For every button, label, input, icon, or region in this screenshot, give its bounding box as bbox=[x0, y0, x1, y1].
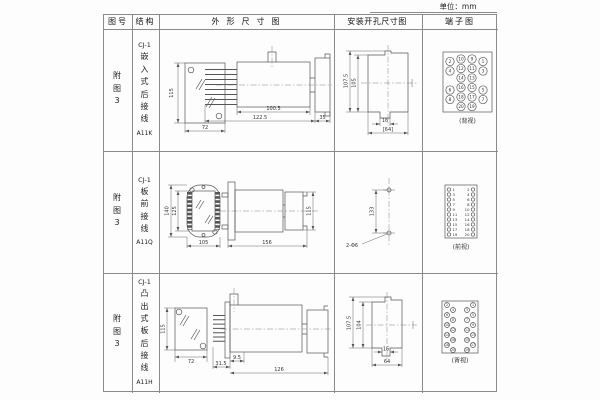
unit-underline bbox=[370, 12, 497, 13]
svg-text:3: 3 bbox=[482, 69, 485, 74]
svg-text:72: 72 bbox=[202, 125, 208, 131]
model-label: CJ-1 bbox=[138, 278, 151, 286]
fig-cell-row2: 附图3 bbox=[103, 150, 131, 272]
svg-text:[64]: [64] bbox=[383, 127, 393, 133]
terminal-circles-back-stagger: 2468101214161820135791113151719 bbox=[445, 303, 476, 353]
unit-label: 单位：mm bbox=[420, 1, 496, 12]
svg-text:31.5: 31.5 bbox=[215, 361, 226, 367]
svg-text:126: 126 bbox=[274, 367, 284, 373]
svg-text:9: 9 bbox=[472, 323, 474, 327]
svg-text:115: 115 bbox=[161, 324, 167, 334]
install-drawing-a11q: 133 2-Φ6 bbox=[333, 150, 421, 272]
code-label: A11K bbox=[137, 130, 153, 137]
svg-text:11: 11 bbox=[465, 328, 469, 332]
svg-text:64: 64 bbox=[384, 359, 390, 365]
svg-text:19: 19 bbox=[469, 104, 475, 109]
svg-text:20: 20 bbox=[465, 232, 470, 237]
svg-text:100.5: 100.5 bbox=[266, 106, 280, 112]
svg-text:12: 12 bbox=[451, 328, 455, 332]
svg-text:18: 18 bbox=[445, 343, 449, 347]
side-view: 156 115 bbox=[220, 182, 320, 248]
svg-text:140: 140 bbox=[165, 206, 171, 216]
svg-text:16: 16 bbox=[383, 347, 389, 353]
model-label: CJ-1 bbox=[138, 176, 151, 184]
svg-text:17: 17 bbox=[471, 343, 475, 347]
svg-text:3: 3 bbox=[466, 308, 468, 312]
document-page: 单位：mm 图号 结构 外形尺寸图 安装开孔尺寸图 端子图 附图3 附图3 附图… bbox=[0, 0, 600, 400]
hole-callout: 2-Φ6 bbox=[346, 243, 358, 249]
svg-text:8: 8 bbox=[452, 318, 454, 322]
model-label: CJ-1 bbox=[138, 41, 151, 49]
front-view: 140 125 105 bbox=[165, 185, 221, 248]
dim-105: 105 bbox=[352, 55, 369, 112]
view-label: (背视) bbox=[459, 117, 476, 125]
svg-text:2: 2 bbox=[449, 59, 452, 64]
svg-text:10: 10 bbox=[445, 323, 449, 327]
svg-text:2: 2 bbox=[446, 303, 448, 307]
svg-text:6: 6 bbox=[449, 88, 452, 93]
svg-text:15: 15 bbox=[469, 85, 475, 90]
view-label: (前视) bbox=[453, 243, 470, 251]
svg-text:7: 7 bbox=[482, 97, 485, 102]
svg-text:1: 1 bbox=[472, 303, 474, 307]
install-drawing-a11h: 107.5 104 16 64 bbox=[333, 272, 421, 392]
svg-text:13: 13 bbox=[471, 333, 475, 337]
svg-text:16: 16 bbox=[458, 85, 464, 90]
svg-text:17: 17 bbox=[469, 95, 475, 100]
terminal-circles-front-list: 1357911131517192468101214161820 bbox=[447, 187, 474, 237]
header-outline-dim: 外形尺寸图 bbox=[158, 14, 333, 28]
structure-cell-row1: CJ-1 嵌入式后接线 A11K bbox=[131, 28, 158, 150]
svg-text:7: 7 bbox=[466, 318, 468, 322]
svg-text:8: 8 bbox=[449, 97, 452, 102]
svg-text:9: 9 bbox=[471, 57, 474, 62]
outline-drawing-a11h: 115 72 9.5 31. bbox=[158, 272, 333, 392]
svg-text:19: 19 bbox=[465, 348, 469, 352]
dim-16: 16 bbox=[372, 118, 398, 126]
svg-text:18: 18 bbox=[458, 95, 464, 100]
header-structure: 结构 bbox=[131, 14, 158, 28]
svg-text:104: 104 bbox=[357, 320, 363, 330]
dim-115: 115 bbox=[169, 63, 185, 123]
svg-text:125: 125 bbox=[172, 206, 178, 216]
svg-text:133: 133 bbox=[370, 207, 376, 217]
dim-115: 115 bbox=[161, 308, 176, 350]
svg-text:72: 72 bbox=[188, 359, 194, 365]
svg-text:16: 16 bbox=[451, 338, 455, 342]
dim-105: 105 bbox=[187, 237, 220, 248]
install-drawing-a11k: 107.5 105 16 [64] bbox=[333, 28, 421, 150]
dim-133: 133 bbox=[370, 190, 388, 233]
svg-text:9.5: 9.5 bbox=[233, 355, 241, 361]
svg-text:122.5: 122.5 bbox=[253, 115, 267, 121]
dim-107-5: 107.5 bbox=[347, 297, 386, 348]
view-label: (背视) bbox=[452, 357, 469, 365]
mount-label: 嵌入式后接线 bbox=[140, 51, 150, 125]
dim-9-5: 9.5 bbox=[230, 352, 244, 363]
svg-text:19: 19 bbox=[453, 232, 458, 237]
svg-text:4: 4 bbox=[449, 69, 452, 74]
outline-drawing-a11q: 140 125 105 15 bbox=[158, 150, 333, 272]
svg-text:5: 5 bbox=[482, 88, 485, 93]
svg-text:105: 105 bbox=[199, 240, 209, 246]
svg-text:16: 16 bbox=[382, 118, 388, 124]
mount-label: 板前接线 bbox=[140, 186, 150, 236]
fig-cell-row3: 附图3 bbox=[103, 272, 131, 392]
front-view: 115 72 bbox=[161, 308, 208, 365]
structure-cell-row3: CJ-1 凸出式板后接线 A11H bbox=[131, 272, 158, 392]
header-fig-no: 图号 bbox=[103, 14, 131, 28]
dim-126: 126 bbox=[230, 357, 328, 375]
svg-text:107.5: 107.5 bbox=[347, 316, 353, 330]
front-view: 115 72 bbox=[169, 63, 225, 133]
side-view: 100.5 122.5 35 bbox=[205, 46, 332, 123]
dim-72: 72 bbox=[175, 350, 207, 365]
svg-text:1: 1 bbox=[482, 59, 485, 64]
structure-cell-row2: CJ-1 板前接线 A11Q bbox=[131, 150, 158, 272]
svg-text:4: 4 bbox=[452, 308, 454, 312]
terminal-diagram-back-grid: 2468101214161820911131517191357 (背视) bbox=[421, 28, 497, 150]
header-terminal: 端子图 bbox=[421, 14, 497, 28]
svg-text:11: 11 bbox=[469, 66, 475, 71]
svg-text:20: 20 bbox=[458, 104, 464, 109]
svg-text:15: 15 bbox=[465, 338, 469, 342]
svg-text:10: 10 bbox=[458, 57, 464, 62]
svg-text:6: 6 bbox=[446, 313, 448, 317]
terminal-circles-back-grid: 2468101214161820911131517191357 bbox=[446, 55, 487, 111]
svg-text:12: 12 bbox=[458, 66, 464, 71]
svg-text:35: 35 bbox=[319, 115, 325, 121]
svg-text:115: 115 bbox=[307, 206, 313, 216]
header-install-dim: 安装开孔尺寸图 bbox=[333, 14, 421, 28]
dim-16: 16 bbox=[374, 347, 398, 354]
dim-156: 156 bbox=[228, 230, 307, 248]
mount-label: 凸出式板后接线 bbox=[140, 288, 150, 375]
svg-text:156: 156 bbox=[262, 240, 272, 246]
svg-text:107.5: 107.5 bbox=[344, 74, 350, 88]
terminal-diagram-front-list: 1357911131517192468101214161820 (前视) bbox=[421, 150, 497, 272]
outline-drawing-a11k: 115 72 100.5 122.5 bbox=[158, 28, 333, 150]
svg-text:5: 5 bbox=[472, 313, 474, 317]
dim-107-5: 107.5 bbox=[344, 51, 386, 112]
terminal-diagram-back-stagger: 2468101214161820135791113151719 (背视) bbox=[421, 272, 497, 392]
code-label: A11H bbox=[136, 379, 152, 386]
svg-text:13: 13 bbox=[469, 76, 475, 81]
svg-text:20: 20 bbox=[451, 348, 455, 352]
svg-text:14: 14 bbox=[445, 333, 449, 337]
fig-cell-row1: 附图3 bbox=[103, 28, 131, 150]
side-view: 9.5 31.5 126 bbox=[213, 288, 332, 375]
svg-text:105: 105 bbox=[352, 78, 358, 88]
svg-text:115: 115 bbox=[169, 88, 175, 98]
svg-text:14: 14 bbox=[458, 76, 464, 81]
code-label: A11Q bbox=[136, 239, 152, 246]
dim-72: 72 bbox=[185, 123, 225, 133]
